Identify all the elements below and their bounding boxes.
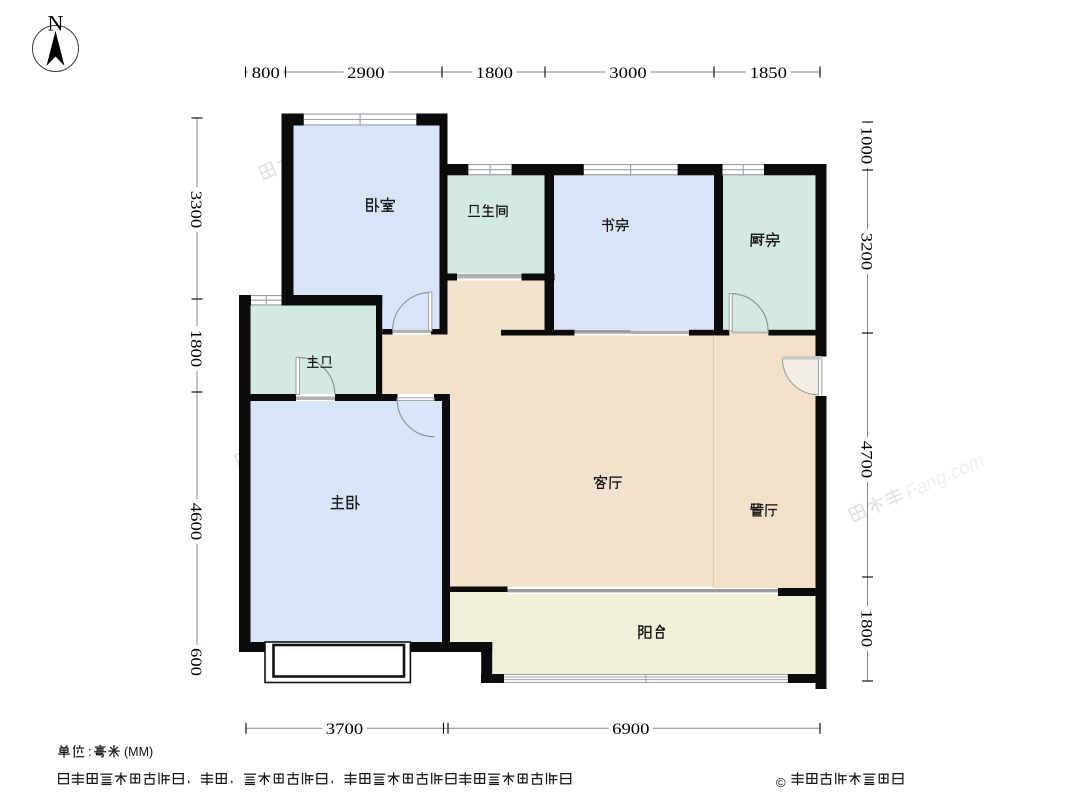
svg-text:Fang.com: Fang.com <box>902 450 988 504</box>
svg-text:3200: 3200 <box>858 233 875 270</box>
svg-text:1800: 1800 <box>858 610 875 647</box>
svg-text:1800: 1800 <box>476 65 513 82</box>
svg-text:3300: 3300 <box>187 191 204 228</box>
svg-text:4600: 4600 <box>187 503 204 540</box>
svg-text:4700: 4700 <box>858 441 875 478</box>
svg-text:1000: 1000 <box>858 127 875 164</box>
svg-text:6900: 6900 <box>612 721 649 738</box>
svg-text:1850: 1850 <box>750 65 787 82</box>
svg-text:800: 800 <box>252 65 280 82</box>
svg-text:3700: 3700 <box>326 721 363 738</box>
svg-text:3000: 3000 <box>609 65 646 82</box>
svg-text:1800: 1800 <box>187 330 204 367</box>
svg-text:600: 600 <box>187 648 204 676</box>
svg-text:2900: 2900 <box>347 65 384 82</box>
svg-text:©: © <box>776 775 786 790</box>
svg-text:(MM): (MM) <box>124 745 153 759</box>
svg-text::: : <box>88 744 92 759</box>
